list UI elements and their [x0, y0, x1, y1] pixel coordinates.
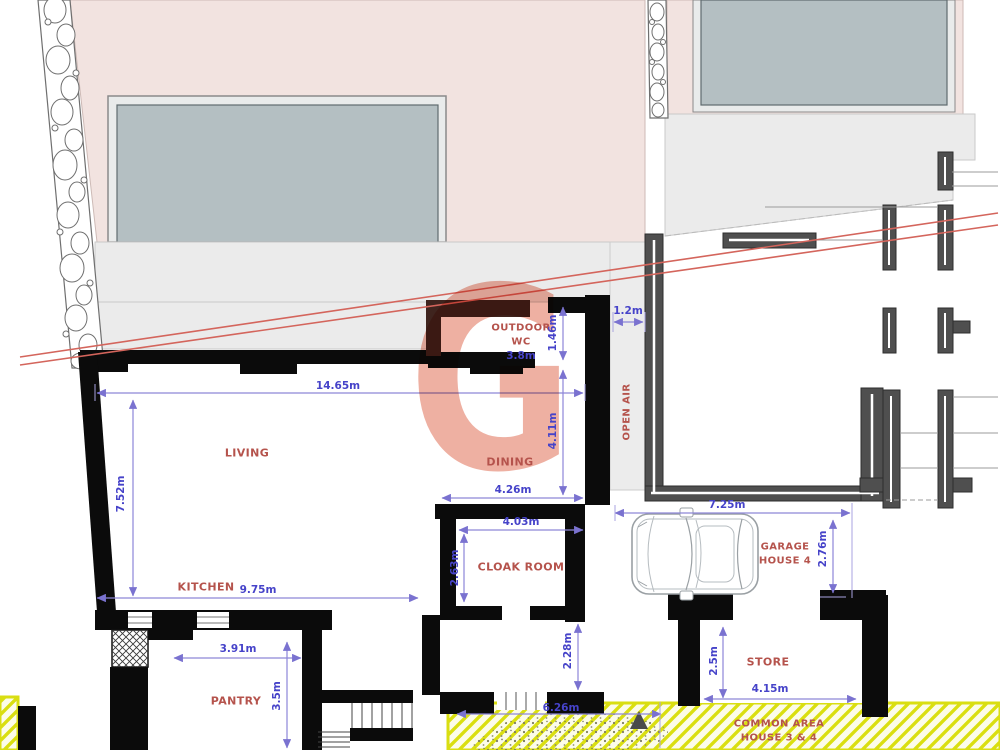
garage-structure — [645, 233, 885, 501]
dim-store-depth: 2.5m — [708, 646, 720, 676]
dim-store-width: 4.15m — [752, 683, 789, 695]
building-top-right — [667, 0, 963, 114]
dining-room-label: DINING — [486, 456, 533, 469]
store-label: STORE — [747, 656, 790, 669]
dim-cloak-height: 2.63m — [449, 550, 461, 587]
dim-living-height: 7.52m — [115, 476, 127, 513]
garage-label-line1: GARAGE — [761, 542, 810, 553]
outdoor-wc-label-line2: WC — [511, 337, 530, 348]
dim-common-area-width: 6.26m — [543, 702, 580, 714]
dim-cloak-width: 4.03m — [503, 516, 540, 528]
dim-living-width: 14.65m — [316, 380, 360, 392]
open-air-label: OPEN AIR — [622, 384, 633, 441]
dim-wc-height: 1.46m — [547, 315, 559, 352]
stone-wall-top-right — [648, 0, 668, 118]
dim-rear-passage: 2.28m — [562, 633, 574, 670]
garage-label-line2: HOUSE 4 — [759, 556, 811, 567]
garage-wall-stripes — [651, 240, 879, 496]
dim-kitchen-width: 9.75m — [240, 584, 277, 596]
chimney-hatch — [112, 630, 148, 667]
common-area-label-line2: HOUSE 3 & 4 — [741, 733, 818, 744]
kitchen-label: KITCHEN — [178, 581, 235, 594]
dim-dining-height: 4.11m — [547, 413, 559, 450]
common-area-label-line1: COMMON AREA — [734, 719, 825, 730]
watermark-letter: G — [408, 256, 573, 508]
dim-garage-depth: 2.76m — [817, 531, 829, 568]
living-room-label: LIVING — [225, 447, 269, 460]
floor-plan-canvas: G LIVING DINING KITCHEN PANTRY CLOAK ROO… — [0, 0, 1000, 750]
outdoor-wc-label-line1: OUTDOOR — [491, 323, 550, 334]
car-icon — [632, 508, 758, 600]
pantry-label: PANTRY — [211, 695, 262, 708]
dim-garage-width: 7.25m — [709, 499, 746, 511]
dim-wc-width: 3.8m — [506, 350, 536, 362]
dim-open-air-gap: 1.2m — [613, 305, 643, 317]
dim-dining-width: 4.26m — [495, 484, 532, 496]
dim-pantry-height: 3.5m — [271, 681, 283, 711]
dim-pantry-width: 3.91m — [220, 643, 257, 655]
cloak-room-label: CLOAK ROOM — [478, 561, 565, 574]
building-top-left — [70, 0, 645, 242]
